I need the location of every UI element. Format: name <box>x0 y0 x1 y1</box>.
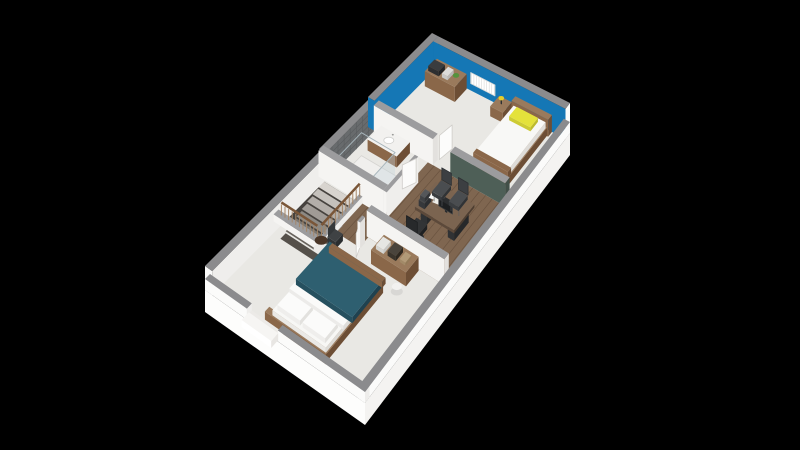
bedroom2-pouf <box>392 283 402 290</box>
bathroom-faucet <box>392 134 394 136</box>
bathroom-sink <box>384 137 394 143</box>
bedroom1-dresser-plant <box>453 73 459 78</box>
bedroom1-lamp-shade <box>499 96 505 100</box>
stair-newel-curve <box>315 236 328 245</box>
floor-plan-stage <box>0 0 800 450</box>
floor-plan-3d-render <box>0 0 800 450</box>
hall-wall-stub <box>358 215 366 248</box>
